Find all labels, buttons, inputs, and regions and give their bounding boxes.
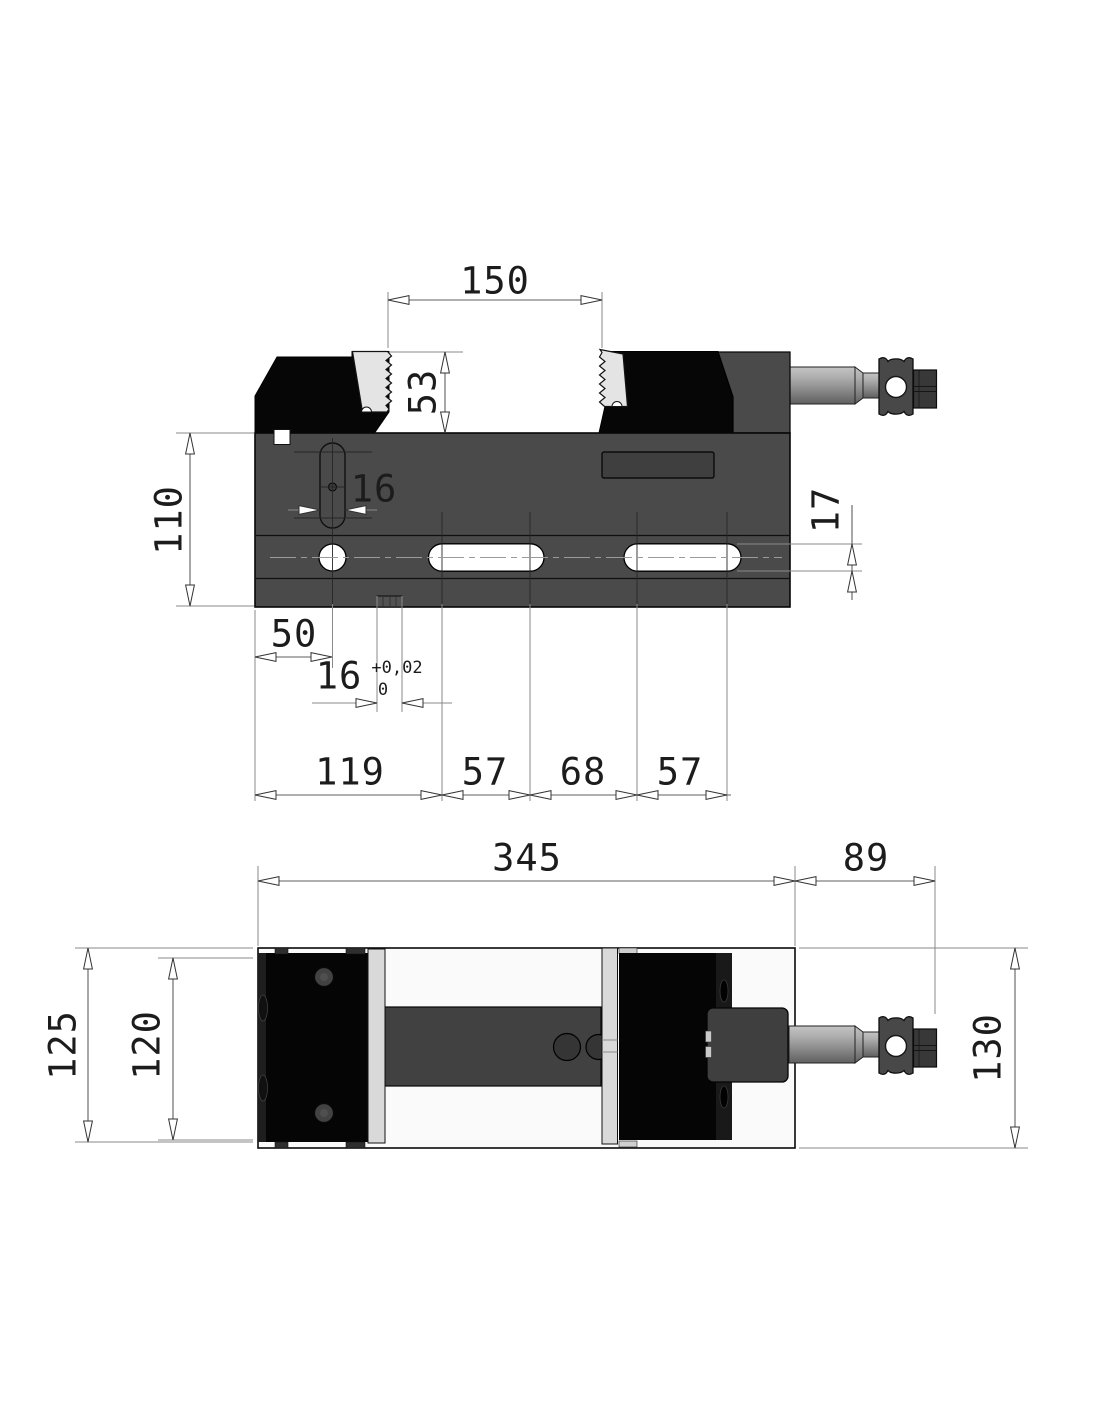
- plan-view: [258, 948, 937, 1148]
- plan-fixed-jaw-edge: [258, 953, 266, 1142]
- dim-jaw-opening: 150: [460, 260, 530, 303]
- plan-carrier-block: [707, 1008, 788, 1082]
- plan-fixed-jaw: [258, 953, 368, 1142]
- dim-chain-68: 68: [560, 751, 607, 794]
- handle-hole: [886, 377, 907, 398]
- spindle-assembly: [789, 358, 937, 416]
- channel-hole-1: [554, 1034, 581, 1061]
- dim-chain-57a: 57: [462, 751, 509, 794]
- handle-nut: [914, 370, 937, 408]
- dim-overall-width: 130: [967, 1013, 1010, 1083]
- dim-key-tol-minus: 0: [378, 680, 388, 700]
- dim-key-width: 16: [316, 655, 363, 698]
- movable-jaw-plate: [600, 350, 628, 407]
- plan-movable-jaw: [619, 953, 716, 1140]
- alignment-key: [377, 596, 402, 607]
- dim-chain-119: 119: [315, 751, 385, 794]
- dim-base-width: 125: [42, 1010, 85, 1080]
- spindle-neck: [863, 373, 879, 398]
- name-plate: [602, 452, 714, 478]
- dim-jaw-width: 120: [126, 1010, 169, 1080]
- plan-movable-jaw-plate: [602, 948, 618, 1144]
- dim-body-length: 345: [492, 837, 562, 880]
- spindle-shaft: [789, 367, 855, 404]
- dim-hole-offset: 50: [271, 613, 318, 656]
- dim-chain-57b: 57: [657, 751, 704, 794]
- spindle-taper: [855, 367, 863, 404]
- dim-body-height: 110: [148, 485, 191, 555]
- dim-rail-height: 17: [805, 487, 848, 534]
- drawing-sheet: 150 53 110 16 17 50 16 +0,02 0 119 57 68…: [0, 0, 1100, 1422]
- plan-spindle-assembly: [789, 1017, 937, 1075]
- dim-spindle-length: 89: [843, 837, 890, 880]
- vise-technical-drawing: 150 53 110 16 17 50 16 +0,02 0 119 57 68…: [0, 0, 1100, 1422]
- plan-fixed-jaw-plate: [368, 949, 385, 1143]
- dim-key-tol-plus: +0,02: [371, 658, 422, 678]
- dim-slot-width: 16: [351, 468, 398, 511]
- dim-jaw-height: 53: [402, 369, 445, 416]
- corner-marker: [274, 430, 290, 445]
